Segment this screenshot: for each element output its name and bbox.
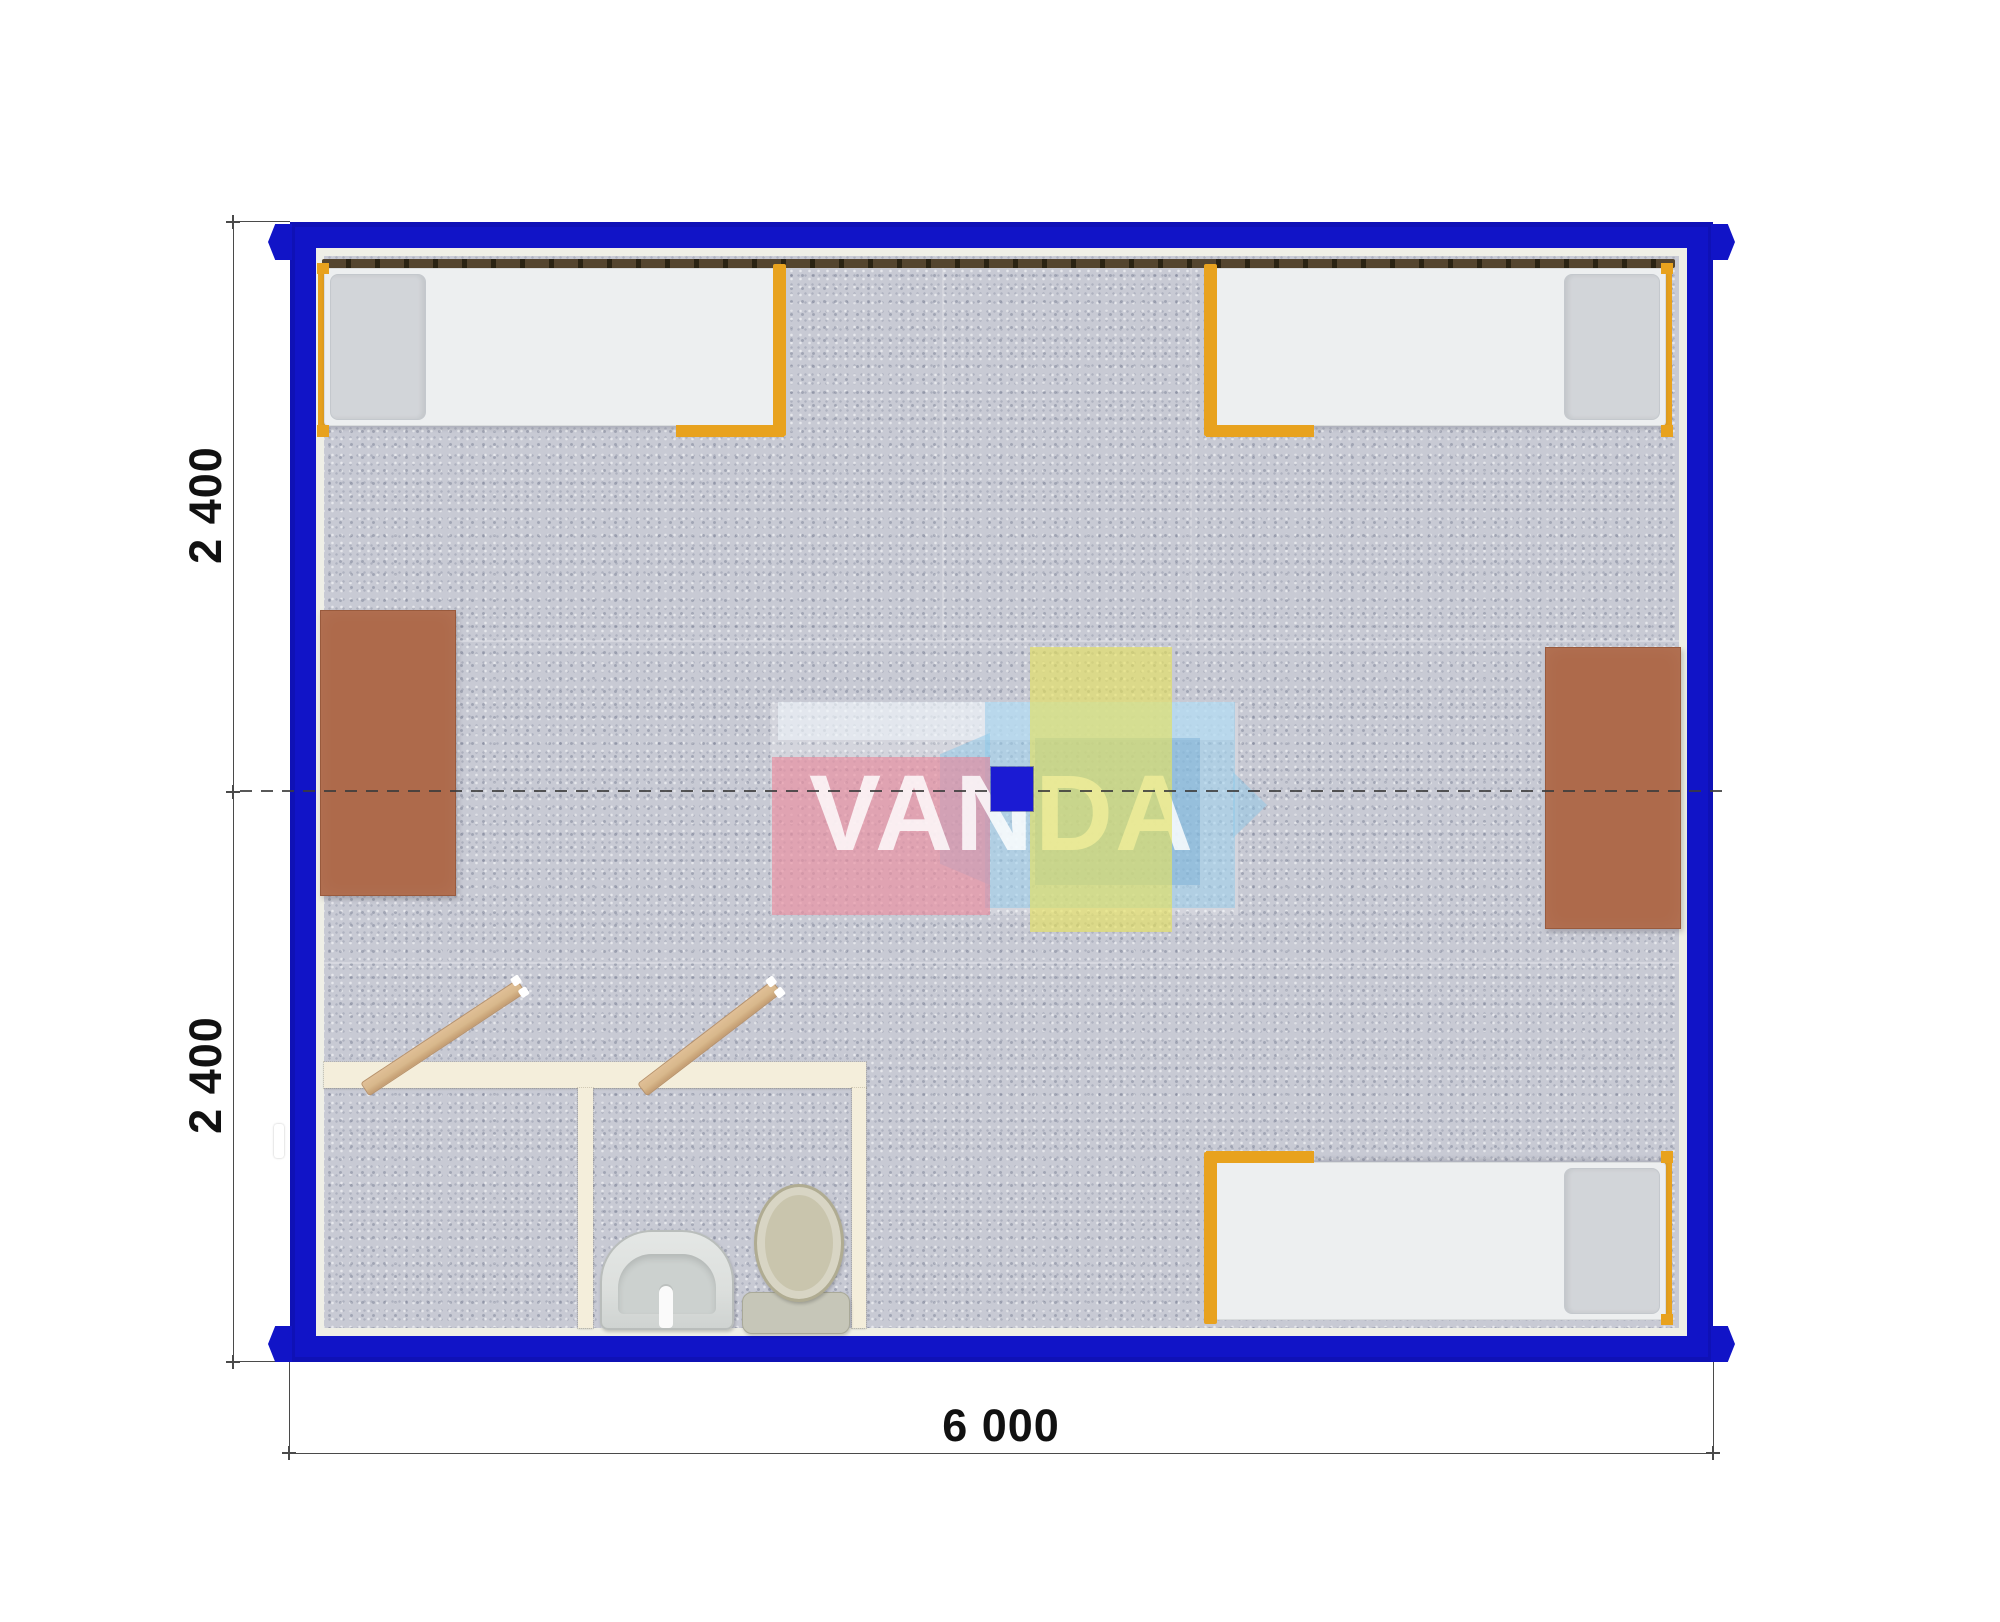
bed-foot-board bbox=[1206, 1151, 1314, 1163]
corner-casting-top-right bbox=[1711, 224, 1735, 260]
center-axis-line bbox=[240, 790, 1722, 792]
dimension-tick bbox=[226, 215, 240, 229]
bed-frame-corner bbox=[1661, 1314, 1673, 1325]
bed-frame-corner bbox=[1661, 1151, 1673, 1163]
floor-plan-canvas: 2 400 2 400 6 000 VANDA bbox=[0, 0, 2000, 1622]
extension-line-top-left bbox=[233, 221, 290, 222]
dimension-tick bbox=[282, 1446, 296, 1460]
bathroom-wall-divider bbox=[578, 1088, 593, 1328]
bed-frame-corner bbox=[317, 425, 329, 437]
sink bbox=[600, 1230, 734, 1330]
window-marker bbox=[274, 1124, 284, 1158]
dimension-label-width-top: 2 400 bbox=[182, 414, 230, 596]
corner-casting-bottom-right bbox=[1711, 1326, 1735, 1362]
bed-foot-rail bbox=[1204, 264, 1217, 436]
bed-frame-corner bbox=[1661, 263, 1673, 274]
corner-casting-bottom-left bbox=[268, 1326, 292, 1362]
floor-seam bbox=[942, 256, 944, 640]
extension-line-bottom-end bbox=[1713, 1362, 1714, 1453]
dimension-tick bbox=[1706, 1446, 1720, 1460]
bed-frame-corner bbox=[317, 263, 329, 274]
floor-seam bbox=[324, 962, 1679, 964]
bed-foot-board bbox=[1206, 425, 1314, 437]
floor-seam bbox=[1190, 256, 1192, 640]
corner-casting-top-left bbox=[268, 224, 292, 260]
dimension-label-length: 6 000 bbox=[901, 1402, 1101, 1448]
bed-foot-board bbox=[676, 425, 784, 437]
dimension-tick bbox=[226, 785, 240, 799]
bed-top-right bbox=[1204, 262, 1674, 438]
dimension-label-width-bottom: 2 400 bbox=[182, 984, 230, 1166]
bed-pillow bbox=[1564, 274, 1660, 420]
bed-pillow bbox=[1564, 1168, 1660, 1314]
dimension-tick bbox=[226, 1355, 240, 1369]
bathroom-wall-right bbox=[852, 1088, 866, 1328]
bed-top-left bbox=[316, 262, 786, 438]
watermark-blue-square bbox=[991, 767, 1033, 811]
bed-pillow bbox=[330, 274, 426, 420]
bed-foot-rail bbox=[773, 264, 786, 436]
bed-foot-rail bbox=[1204, 1152, 1217, 1324]
dimension-line-bottom bbox=[289, 1453, 1714, 1454]
extension-line-bottom-start bbox=[289, 1362, 290, 1453]
bed-frame-corner bbox=[1661, 425, 1673, 437]
toilet-seat bbox=[754, 1184, 844, 1302]
wall-panel-seam-dashes bbox=[283, 345, 288, 1333]
bed-bottom-right bbox=[1204, 1150, 1674, 1326]
desk-right bbox=[1545, 647, 1681, 929]
desk-left bbox=[320, 610, 456, 896]
floor-seam bbox=[324, 640, 1679, 642]
